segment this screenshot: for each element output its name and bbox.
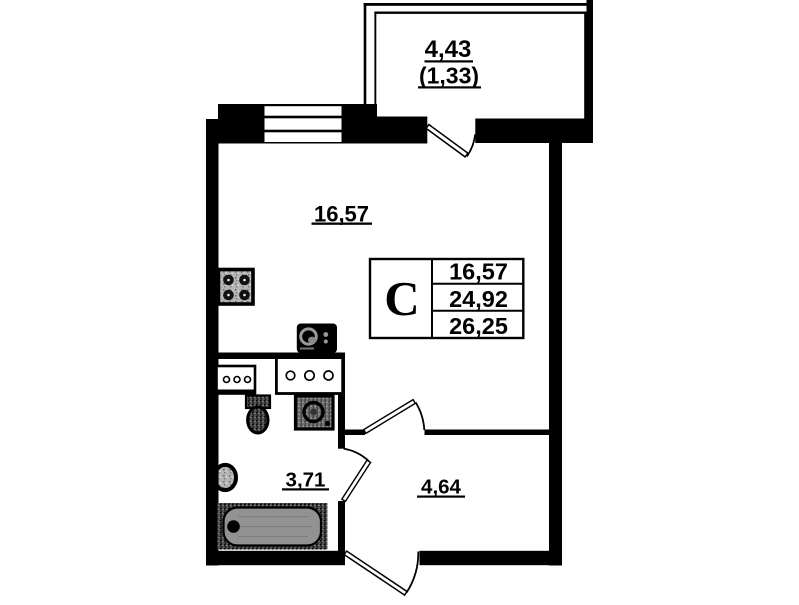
svg-text:4,64: 4,64 bbox=[421, 475, 461, 498]
svg-text:16,57: 16,57 bbox=[449, 259, 508, 285]
svg-text:3,71: 3,71 bbox=[286, 469, 326, 492]
svg-text:26,25: 26,25 bbox=[449, 313, 508, 339]
svg-text:(1,33): (1,33) bbox=[419, 63, 479, 89]
svg-text:4,43: 4,43 bbox=[425, 36, 472, 63]
svg-text:24,92: 24,92 bbox=[449, 286, 508, 312]
svg-text:С: С bbox=[384, 271, 419, 326]
